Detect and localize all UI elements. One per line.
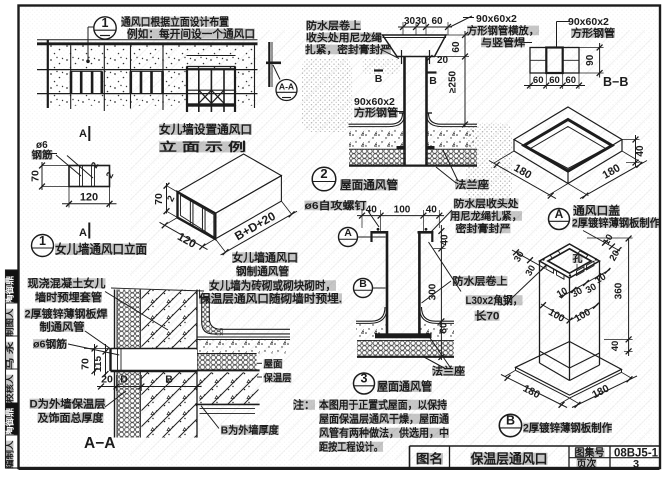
svg-text:方形钢管横放，: 方形钢管横放， <box>467 24 539 37</box>
svg-text:ø6自攻螺钉: ø6自攻螺钉 <box>305 199 368 212</box>
svg-text:360: 360 <box>614 282 625 299</box>
svg-text:3: 3 <box>361 372 368 386</box>
svg-text:屋面通风管: 屋面通风管 <box>377 379 432 394</box>
svg-text:90x60x2: 90x60x2 <box>476 13 517 25</box>
svg-text:40: 40 <box>426 205 438 216</box>
svg-text:长70: 长70 <box>475 309 500 323</box>
svg-text:孔: 孔 <box>573 253 584 265</box>
svg-text:法兰座: 法兰座 <box>432 365 466 378</box>
svg-text:A: A <box>344 227 352 239</box>
svg-text:A−A: A−A <box>84 435 115 452</box>
svg-text:40: 40 <box>610 341 621 352</box>
svg-text:距按工程设计。: 距按工程设计。 <box>319 440 383 454</box>
svg-text:B: B <box>375 73 383 85</box>
svg-text:≥250: ≥250 <box>448 70 459 93</box>
svg-text:防水层卷上: 防水层卷上 <box>453 275 509 288</box>
svg-text:保温层通风口: 保温层通风口 <box>470 451 548 467</box>
svg-text:钢制通风管: 钢制通风管 <box>236 264 289 278</box>
svg-text:60: 60 <box>451 41 462 53</box>
svg-text:2: 2 <box>320 166 327 181</box>
svg-text:法兰座: 法兰座 <box>455 178 490 191</box>
svg-text:立 面 示 例: 立 面 示 例 <box>159 139 246 154</box>
svg-text:B为外墙厚度: B为外墙厚度 <box>221 424 279 437</box>
svg-text:及饰面总厚度: 及饰面总厚度 <box>38 411 105 425</box>
svg-text:20: 20 <box>101 374 113 386</box>
svg-text:A: A <box>79 128 87 140</box>
svg-text:屋面通风管: 屋面通风管 <box>340 177 398 192</box>
svg-text:90: 90 <box>585 54 596 66</box>
svg-text:B: B <box>429 75 437 87</box>
svg-text:女儿墙设置通风口: 女儿墙设置通风口 <box>159 122 252 137</box>
svg-text:90x60x2: 90x60x2 <box>568 16 609 28</box>
svg-text:女儿墙通风口立面: 女儿墙通风口立面 <box>55 242 147 257</box>
svg-text:70: 70 <box>153 193 165 205</box>
svg-text:页次: 页次 <box>577 457 597 470</box>
svg-text:B: B <box>359 278 367 290</box>
svg-text:保温层通风口随砌墙时预埋.: 保温层通风口随砌墙时预埋. <box>198 292 342 306</box>
svg-text:女儿墙通风口: 女儿墙通风口 <box>232 251 298 265</box>
svg-text:钢筋: 钢筋 <box>32 149 53 162</box>
svg-text:防水层收头处: 防水层收头处 <box>454 197 520 210</box>
svg-text:2厚镀锌薄钢板焊: 2厚镀锌薄钢板焊 <box>25 307 108 321</box>
svg-text:A: A <box>79 227 87 239</box>
svg-text:40: 40 <box>440 234 451 246</box>
svg-text:ø6: ø6 <box>36 140 48 151</box>
svg-text:陶御鼎: 陶御鼎 <box>5 408 15 436</box>
svg-text:30: 30 <box>415 16 427 27</box>
svg-text:通风口盖: 通风口盖 <box>573 204 621 218</box>
svg-text:60: 60 <box>431 16 443 27</box>
svg-text:收头处用尼龙绳: 收头处用尼龙绳 <box>306 31 383 44</box>
svg-text:防水层卷上: 防水层卷上 <box>306 19 362 32</box>
svg-text:100: 100 <box>394 205 411 216</box>
svg-text:60: 60 <box>533 75 544 86</box>
svg-text:40: 40 <box>635 145 646 157</box>
svg-text:屋面: 屋面 <box>264 359 283 371</box>
svg-text:陶御鼎: 陶御鼎 <box>5 276 15 304</box>
svg-text:注：: 注： <box>293 398 315 412</box>
svg-text:通风口根据立面设计布置: 通风口根据立面设计布置 <box>121 15 229 29</box>
svg-text:与竖管焊: 与竖管焊 <box>481 36 526 49</box>
svg-text:制图人: 制图人 <box>5 308 15 337</box>
svg-text:2厚镀锌薄钢板制作: 2厚镀锌薄钢板制作 <box>523 421 612 435</box>
svg-text:L30x2角钢，: L30x2角钢， <box>466 293 523 307</box>
svg-text:1: 1 <box>102 16 109 30</box>
svg-text:马 永: 马 永 <box>5 340 15 369</box>
svg-text:60: 60 <box>566 75 577 86</box>
svg-text:图名: 图名 <box>416 451 443 466</box>
svg-text:40: 40 <box>366 205 378 216</box>
svg-text:70: 70 <box>80 358 92 370</box>
svg-text:编制人: 编制人 <box>5 440 15 469</box>
svg-text:A-A: A-A <box>279 82 294 92</box>
svg-text:图集号: 图集号 <box>575 446 605 459</box>
svg-text:校核人: 校核人 <box>5 374 15 403</box>
svg-text:120: 120 <box>80 192 98 204</box>
svg-text:A: A <box>555 207 564 221</box>
svg-text:60: 60 <box>549 75 560 86</box>
svg-text:密封膏封严: 密封膏封严 <box>456 222 512 235</box>
svg-text:女儿墙为砖砌或砌块砌时，: 女儿墙为砖砌或砌块砌时， <box>209 279 336 293</box>
svg-text:保温层: 保温层 <box>263 371 292 384</box>
svg-text:ø6钢筋: ø6钢筋 <box>33 338 67 351</box>
svg-text:1: 1 <box>39 234 46 248</box>
svg-text:D为外墙保温层: D为外墙保温层 <box>30 397 106 411</box>
svg-text:方形钢管: 方形钢管 <box>571 27 616 40</box>
svg-text:扎紧，密封膏封严: 扎紧，密封膏封严 <box>305 43 392 56</box>
svg-text:本图用于正置式屋面，以保持: 本图用于正置式屋面，以保持 <box>319 398 447 412</box>
svg-text:墙时预埋套管: 墙时预埋套管 <box>35 290 102 304</box>
svg-text:3: 3 <box>633 458 639 470</box>
svg-text:30: 30 <box>404 16 416 27</box>
svg-text:70: 70 <box>30 170 42 182</box>
svg-text:方形钢管: 方形钢管 <box>354 106 399 119</box>
svg-text:风管有两种做法，供选用，中: 风管有两种做法，供选用，中 <box>319 426 449 440</box>
svg-text:115: 115 <box>93 355 104 372</box>
svg-text:制通风管: 制通风管 <box>40 320 85 334</box>
svg-text:B: B <box>506 414 515 428</box>
svg-text:2厚镀锌薄钢板制作: 2厚镀锌薄钢板制作 <box>572 216 660 230</box>
svg-text:例如：每开间设一个通风口: 例如：每开间设一个通风口 <box>127 26 255 40</box>
svg-text:D: D <box>120 374 128 386</box>
svg-text:现浇混凝土女儿: 现浇混凝土女儿 <box>28 276 106 290</box>
svg-text:屋面保温层通风干燥，屋面通: 屋面保温层通风干燥，屋面通 <box>319 412 449 426</box>
svg-text:B: B <box>165 374 173 386</box>
svg-text:用尼龙绳扎紧，: 用尼龙绳扎紧， <box>449 210 522 223</box>
svg-text:B−B: B−B <box>603 75 628 89</box>
